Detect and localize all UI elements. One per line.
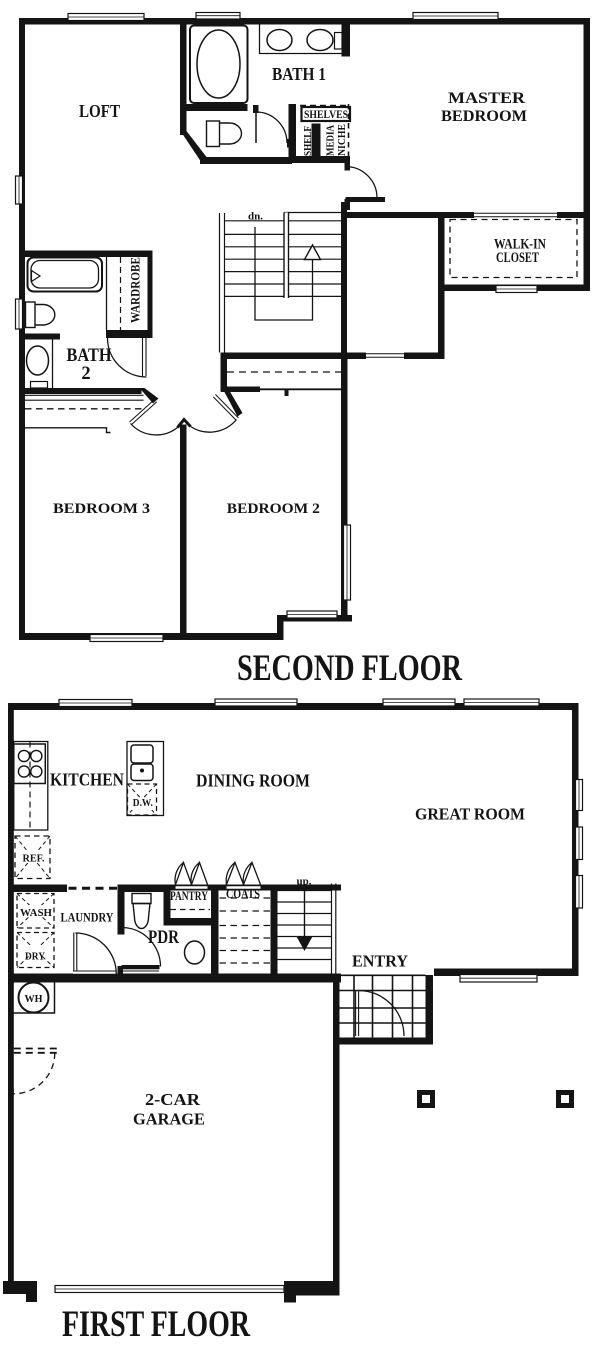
svg-text:MEDIA: MEDIA [325, 125, 337, 156]
svg-text:DINING ROOM: DINING ROOM [196, 771, 310, 791]
svg-text:GREAT ROOM: GREAT ROOM [415, 805, 525, 824]
svg-text:CLOSET: CLOSET [496, 250, 539, 266]
svg-text:BATH 1: BATH 1 [272, 64, 326, 84]
svg-text:MASTER: MASTER [448, 90, 526, 107]
svg-text:SECOND FLOOR: SECOND FLOOR [237, 648, 463, 689]
svg-text:KITCHEN: KITCHEN [50, 770, 124, 790]
svg-text:GARAGE: GARAGE [133, 1110, 205, 1129]
svg-text:DRY: DRY [25, 951, 45, 963]
svg-text:LAUNDRY: LAUNDRY [61, 910, 114, 925]
svg-text:BEDROOM 3: BEDROOM 3 [53, 501, 150, 517]
svg-text:NICHE: NICHE [336, 124, 348, 156]
svg-text:COATS: COATS [226, 887, 260, 901]
svg-text:BATH: BATH [67, 346, 113, 366]
svg-text:REF.: REF. [23, 854, 45, 865]
svg-text:WASH: WASH [20, 907, 52, 919]
svg-text:LOFT: LOFT [79, 101, 120, 121]
svg-text:PANTRY: PANTRY [170, 888, 208, 903]
svg-text:WH: WH [25, 993, 43, 1005]
svg-text:2-CAR: 2-CAR [145, 1090, 201, 1109]
svg-text:up.: up. [297, 876, 312, 888]
svg-text:dn.: dn. [248, 211, 263, 223]
svg-text:FIRST FLOOR: FIRST FLOOR [62, 1304, 251, 1345]
svg-text:BEDROOM 2: BEDROOM 2 [227, 501, 320, 517]
svg-text:2: 2 [81, 364, 90, 384]
svg-text:SHELVES: SHELVES [304, 109, 348, 121]
svg-text:PDR: PDR [148, 927, 179, 948]
svg-text:BEDROOM: BEDROOM [441, 108, 527, 125]
svg-text:ENTRY: ENTRY [352, 952, 408, 971]
svg-text:WARDROBE: WARDROBE [129, 257, 143, 323]
svg-text:D.W.: D.W. [133, 798, 153, 809]
